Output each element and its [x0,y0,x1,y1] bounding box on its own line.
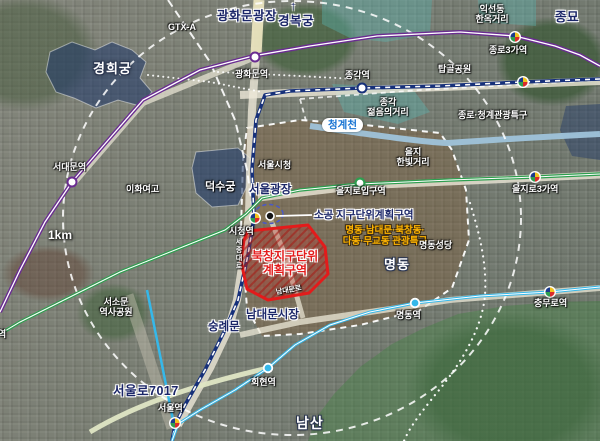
myeongdong-label: 명동 [384,258,410,273]
gyeonghuigung-label: 경희궁 [93,62,132,77]
myeongdong-cathedral-label: 명동성당 [419,240,452,250]
seodaemun-station-label: 서대문역 [53,162,86,172]
cityhall-station-label: 시청역 [229,226,254,236]
map-canvas: GTX-A 광화문광장 ↑ 경복궁 종묘 익선동 한옥거리 경희궁 광화문역 서… [0,0,600,441]
namsan-label: 남산 [296,415,324,431]
ikseondong-hanok-street-label: 익선동 한옥거리 [462,4,522,25]
bukchang-plan-zone-label: 북창지구단위 계획구역 [246,250,324,278]
gyeongbokgung-arrow: ↑ [290,0,297,13]
station-marker-jongno3ga-line1 [517,76,529,88]
cheonggyecheon-label: 청계천 [322,118,363,132]
eulji-hanbit-street-label: 을지 한빛거리 [390,147,436,168]
jonggak-youth-street-label: 종각 젊음의거리 [362,97,414,118]
gwanghwamun-station-label: 광화문역 [235,69,268,79]
scale-1km-label: 1km [48,229,72,243]
hoehyeon-station-label: 회현역 [251,377,276,387]
sogong-plan-zone-label: 소공 지구단위계획구역 [314,209,414,221]
sejongdaero-road-label: 세종대로 [234,238,242,270]
euljiro3ga-station-label: 을지로3가역 [512,184,558,194]
map-overlay-layer [0,0,600,441]
chungjeongno-station-label: 충정로역 [0,329,6,339]
seosomun-history-park-label: 서소문 역사공원 [92,297,140,318]
tapgol-park-label: 탑골공원 [438,64,471,74]
station-marker-euljiro3ga [529,171,541,183]
ewha-girls-high-school-label: 이화여고 [126,184,159,194]
zone-deoksugung [192,148,250,207]
station-marker-gwanghwamun [251,53,260,62]
gtx-a-label: GTX-A [168,22,196,32]
deoksugung-label: 덕수궁 [205,181,235,194]
sogong-leader-line [276,215,312,216]
jongno3ga-station-label: 종로3가역 [489,45,527,55]
station-marker-chungmuro [544,286,556,298]
seoul-station-label: 서울역 [158,403,183,413]
station-marker-seoul-station [169,417,181,429]
station-marker-hoehyeon [264,364,273,373]
station-marker-cityhall [249,212,261,224]
gyeongbokgung-label: 경복궁 [278,14,314,28]
sungnyemun-label: 숭례문 [208,321,240,334]
station-marker-seodaemun [68,178,77,187]
station-marker-myeongdong [411,299,420,308]
jongno-cheonggye-tourist-zone-label: 종로·청계관광특구 [458,110,527,120]
seoul-plaza-label: 서울광장 [249,184,291,197]
sogong-point-dot [266,212,274,220]
euljiro1ga-station-label: 을지로입구역 [336,186,386,196]
seoul-city-hall-label: 서울시청 [258,160,291,170]
namdaemun-market-label: 남대문시장 [246,309,299,322]
gwanghwamun-plaza-label: 광화문광장 [217,9,277,23]
station-marker-jongno3ga-line5 [509,31,521,43]
station-marker-jonggak [358,84,367,93]
jonggak-station-label: 종각역 [345,70,370,80]
chungmuro-station-label: 충무로역 [534,298,567,308]
myeongdong-station-label: 명동역 [396,310,421,320]
seoullo7017-label: 서울로7017 [113,384,179,398]
jongmyo-label: 종묘 [555,10,579,24]
